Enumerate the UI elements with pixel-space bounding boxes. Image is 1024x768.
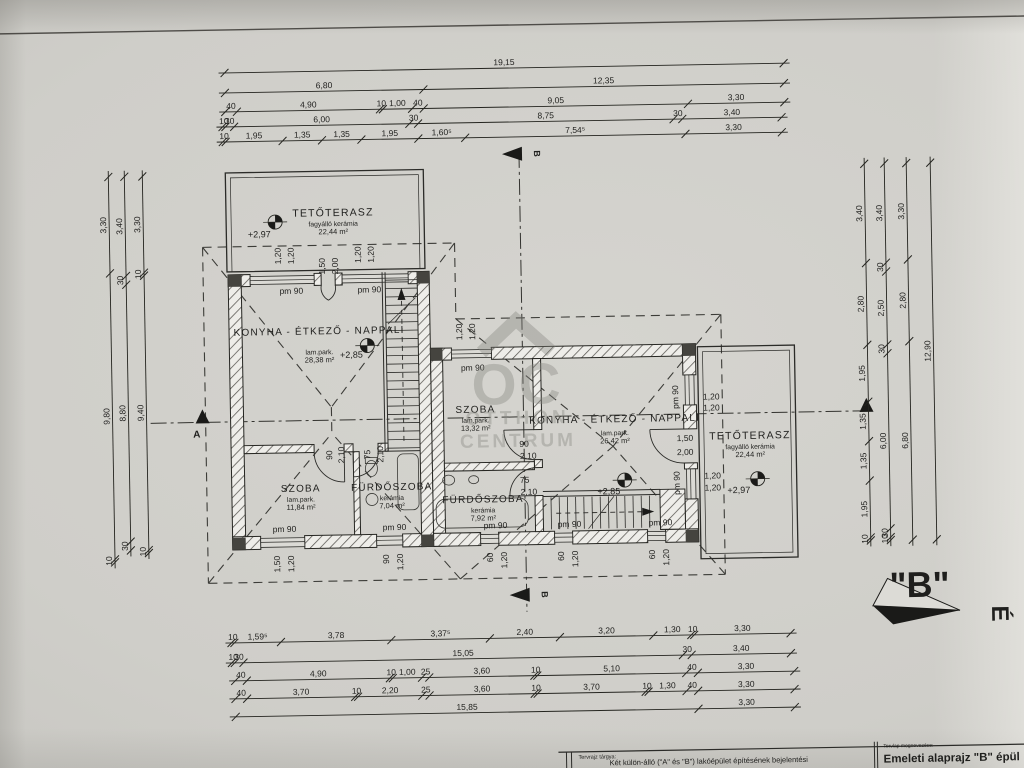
level-value: +2,85 xyxy=(597,486,620,496)
dim-chain: 404,90101,00409,053,30 xyxy=(219,91,790,116)
level-value: +2,85 xyxy=(340,350,363,360)
room-name: TETŐTERASZ xyxy=(709,427,791,442)
dim-label: 3,70 xyxy=(293,687,310,697)
title-block: Tervrajz tárgya: Két külön-álló ("A" és … xyxy=(558,739,1024,768)
level-mark: +2,85 xyxy=(340,338,380,360)
title-block-right-text: Emeleti alaprajz "B" épül xyxy=(884,751,1020,765)
room-label: TETŐTERASZfagyálló kerámia22,44 m² xyxy=(292,204,374,236)
opening-dim-label: 1,20 xyxy=(570,550,580,567)
dim-label: 8,80 xyxy=(117,405,127,422)
opening-dim-label: 60 xyxy=(647,550,657,560)
sheet-border-line xyxy=(0,16,1024,34)
opening-dim-label: 60 xyxy=(485,552,495,562)
room-name: TETŐTERASZ xyxy=(292,204,374,219)
dim-label: 1,59⁵ xyxy=(247,631,267,641)
dim-label: 40 xyxy=(413,98,423,108)
dim-label: 4,90 xyxy=(300,99,317,109)
opening-dim-label: 1,50 xyxy=(272,555,282,572)
dim-label: 3,30 xyxy=(738,697,755,707)
dim-label: 30 xyxy=(875,262,885,272)
dim-label: 1,95 xyxy=(246,130,263,140)
opening-dim-label: 1,50 xyxy=(677,433,694,443)
opening-dim-label: 1,20 xyxy=(704,470,721,480)
dim-chain: 3,30109,4010 xyxy=(131,170,153,559)
opening-dim-label: 1,20 xyxy=(467,323,477,340)
dim-label: 3,78 xyxy=(328,630,345,640)
opening-dim-label: 1,20 xyxy=(703,402,720,412)
opening-dim-label: 75 xyxy=(362,449,372,459)
dim-label: 2,80 xyxy=(897,292,907,309)
dim-chain: 3,40302,50306,003010 xyxy=(873,157,895,546)
opening-dim-label: 1,20 xyxy=(366,246,376,263)
room-area: 28,38 m² xyxy=(305,355,335,365)
dim-label: 1,35 xyxy=(294,129,311,139)
dim-label: 6,00 xyxy=(878,432,888,449)
room-area: 11,84 m² xyxy=(287,502,317,512)
dim-label: 30 xyxy=(225,116,235,126)
dim-label: 1,35 xyxy=(858,413,868,430)
dim-label: 30 xyxy=(682,644,692,654)
dim-label: 6,00 xyxy=(313,114,330,124)
section-b-label-bottom: B xyxy=(540,591,550,598)
opening-dim-label: 1,50 xyxy=(317,258,327,275)
room-name: FÜRDŐSZOBA xyxy=(442,491,524,506)
dim-label: 1,00 xyxy=(389,98,406,108)
dim-label: 40 xyxy=(226,101,236,111)
dim-label: 3,30 xyxy=(896,203,906,220)
dim-label: 3,37⁵ xyxy=(430,628,450,638)
room-area: 22,44 m² xyxy=(318,227,348,237)
section-b-arrow-top xyxy=(502,147,522,161)
section-a-arrow-left xyxy=(195,409,209,423)
dim-label: 2,40 xyxy=(516,627,533,637)
opening-dim-label: pm 90 xyxy=(558,519,582,529)
opening-dim-label: pm 90 xyxy=(279,286,303,296)
dim-label: 7,54⁵ xyxy=(565,125,585,135)
room-name: FÜRDŐSZOBA xyxy=(351,478,433,493)
dim-label: 1,95 xyxy=(857,365,867,382)
dim-chain: 103015,05303,40 xyxy=(226,642,797,667)
dim-label: 1,30 xyxy=(659,680,676,690)
dim-label: 3,70 xyxy=(583,682,600,692)
room-label: FÜRDŐSZOBAkerámia7,92 m² xyxy=(442,491,524,523)
dim-label: 5,10 xyxy=(603,663,620,673)
dim-label: 3,30 xyxy=(728,92,745,102)
dim-chain: 404,90101,00253,60105,10403,30 xyxy=(229,660,800,685)
dim-label: 19,15 xyxy=(493,57,515,67)
dim-label: 3,40 xyxy=(854,205,864,222)
dim-label: 1,95 xyxy=(381,128,398,138)
opening-dim-label: 2,00 xyxy=(677,447,694,457)
section-b-arrow-bottom xyxy=(510,588,530,602)
opening-dim-label: 1,20 xyxy=(661,549,671,566)
room-label: TETŐTERASZfagyálló kerámia22,44 m² xyxy=(709,427,791,459)
dim-label: 40 xyxy=(687,680,697,690)
opening-dim-label: pm 90 xyxy=(672,471,682,495)
scanned-floor-plan-photo: A B B "B" É 19,156,8012,35404,90101,0040… xyxy=(0,0,1024,768)
dim-chain: 10306,00308,75303,40 xyxy=(216,106,787,131)
dim-label: 4,90 xyxy=(310,668,327,678)
opening-dim-label: 90 xyxy=(324,450,334,460)
dim-label: 30 xyxy=(876,344,886,354)
dim-chain: 12,90 xyxy=(919,157,941,546)
dim-chain: 3,302,806,80 xyxy=(895,157,917,546)
dim-label: 3,30 xyxy=(738,661,755,671)
dim-label: 9,80 xyxy=(101,408,111,425)
dim-label: 3,40 xyxy=(723,107,740,117)
dim-label: 12,35 xyxy=(593,75,615,85)
opening-dim-label: 1,20 xyxy=(454,323,464,340)
level-mark: +2,85 xyxy=(597,473,637,497)
dim-chain: 15,853,30 xyxy=(230,696,801,721)
level-value: +2,97 xyxy=(248,229,271,239)
dim-label: 1,00 xyxy=(399,667,416,677)
section-b-label-top: B xyxy=(532,150,542,157)
dim-label: 40 xyxy=(687,662,697,672)
dim-label: 1,60⁵ xyxy=(432,127,452,137)
opening-dim-label: 2,00 xyxy=(330,257,340,274)
section-a-label: A xyxy=(193,429,200,440)
level-mark: +2,97 xyxy=(248,215,288,240)
dim-label: 30 xyxy=(234,652,244,662)
dim-label: 40 xyxy=(236,688,246,698)
opening-dim-label: pm 90 xyxy=(273,524,297,534)
dim-label: 3,30 xyxy=(725,122,742,132)
building-b-label: "B" xyxy=(889,563,950,605)
room-area: 7,04 m² xyxy=(379,501,405,510)
opening-dim-label: pm 90 xyxy=(649,517,673,527)
opening-dim-label: pm 90 xyxy=(383,522,407,532)
opening-dim-label: 2,10 xyxy=(375,446,385,463)
opening-dim-label: pm 90 xyxy=(670,385,680,409)
dim-label: 3,20 xyxy=(598,625,615,635)
dim-label: 1,35 xyxy=(333,129,350,139)
dim-label: 30 xyxy=(115,275,125,285)
level-mark: +2,97 xyxy=(727,472,770,496)
room-name: SZOBA xyxy=(281,483,321,495)
dim-label: 30 xyxy=(673,108,683,118)
dim-label: 25 xyxy=(421,684,431,694)
section-a-arrow-right xyxy=(859,398,873,412)
dim-label: 8,75 xyxy=(537,110,554,120)
dim-label: 12,90 xyxy=(922,340,932,362)
dim-chain: 19,15 xyxy=(218,52,789,77)
dim-chain: 101,951,351,351,951,60⁵7,54⁵3,30 xyxy=(217,121,788,146)
room-name: KONYHA - ÉTKEZŐ - NAPPALI xyxy=(233,322,404,339)
dim-chain: 3,402,801,951,351,351,9510 xyxy=(853,158,875,547)
opening-dim-label: 1,20 xyxy=(499,552,509,569)
room-area: 26,42 m² xyxy=(600,436,630,446)
dim-chain: 6,8012,35 xyxy=(219,72,790,97)
room-area: 7,92 m² xyxy=(471,513,497,522)
opening-dim-label: 1,20 xyxy=(704,482,721,492)
opening-dim-label: pm 90 xyxy=(357,284,381,294)
dim-label: 1,30 xyxy=(664,624,681,634)
dim-label: 1,95 xyxy=(859,501,869,518)
dim-label: 6,80 xyxy=(316,80,333,90)
opening-dim-label: 90 xyxy=(381,554,391,564)
dim-label: 3,40 xyxy=(114,218,124,235)
dim-label: 15,85 xyxy=(456,702,478,712)
opening-dim-label: 1,20 xyxy=(703,391,720,401)
dim-label: 1,35 xyxy=(858,452,868,469)
room-area: 22,44 m² xyxy=(735,450,765,460)
dim-label: 30 xyxy=(409,113,419,123)
dim-label: 3,30 xyxy=(734,623,751,633)
dim-label: 3,40 xyxy=(733,643,750,653)
dim-label: 3,60 xyxy=(473,665,490,675)
dim-label: 3,40 xyxy=(874,205,884,222)
dim-label: 9,40 xyxy=(135,404,145,421)
room-label: SZOBAlam.park.11,84 m² xyxy=(281,483,321,512)
dim-label: 3,30 xyxy=(738,679,755,689)
dim-label: 25 xyxy=(421,666,431,676)
dim-label: 3,30 xyxy=(132,216,142,233)
dim-label: 15,05 xyxy=(452,648,474,658)
dim-label: 30 xyxy=(120,541,130,551)
dim-label: 40 xyxy=(236,670,246,680)
dim-label: 3,60 xyxy=(474,683,491,693)
level-value: +2,97 xyxy=(727,485,750,495)
opening-dim-label: 1,20 xyxy=(286,555,296,572)
opening-dim-label: 2,10 xyxy=(336,446,346,463)
opening-dim-label: 1,20 xyxy=(353,246,363,263)
title-block-right-label: Tervlap megnevezése: xyxy=(883,743,933,750)
opening-dim-label: 75 xyxy=(520,475,530,485)
opening-dim-label: 1,20 xyxy=(395,553,405,570)
watermark-line1: OTTHON xyxy=(465,407,570,430)
watermark-line2: CENTRUM xyxy=(460,430,576,453)
dim-chain: 101,59⁵3,783,37⁵2,403,201,30103,30 xyxy=(225,622,796,647)
dim-label: 2,20 xyxy=(382,685,399,695)
title-block-left-text: Két külön-álló ("A" és "B") lakóépület é… xyxy=(610,755,809,767)
dim-label: 3,30 xyxy=(98,217,108,234)
opening-dim-label: 1,20 xyxy=(273,247,283,264)
opening-dim-label: 60 xyxy=(556,551,566,561)
floor-plan-svg: A B B "B" É 19,156,8012,35404,90101,0040… xyxy=(0,0,1024,768)
dim-label: 2,80 xyxy=(856,295,866,312)
north-letter: É xyxy=(986,605,1014,622)
opening-dim-label: 2,10 xyxy=(520,451,537,461)
dim-label: 6,80 xyxy=(900,432,910,449)
dim-chain: 403,70102,20253,60103,70101,30403,30 xyxy=(229,678,800,703)
dim-label: 9,05 xyxy=(547,95,564,105)
dim-label: 2,50 xyxy=(876,299,886,316)
opening-dim-label: 1,20 xyxy=(286,247,296,264)
